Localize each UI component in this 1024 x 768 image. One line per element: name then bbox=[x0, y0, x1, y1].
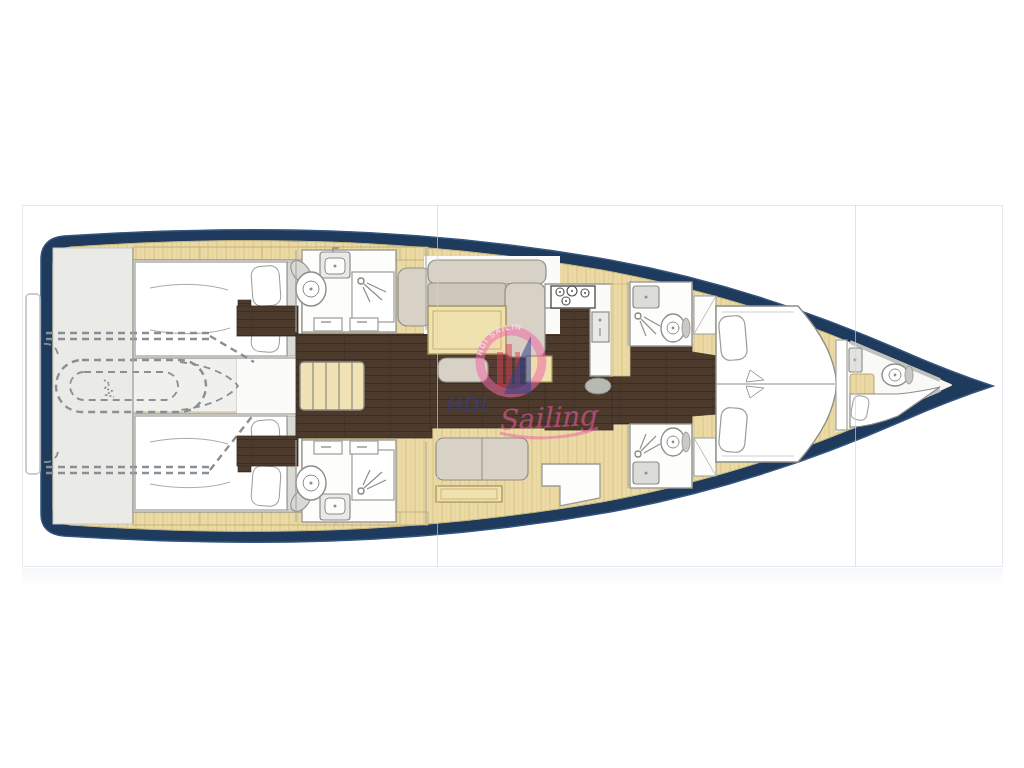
locker bbox=[850, 374, 874, 396]
pillow bbox=[251, 265, 282, 307]
toilet bbox=[882, 364, 913, 386]
gallery-divider-1 bbox=[437, 205, 438, 567]
pillow bbox=[718, 315, 748, 361]
forward-head-port bbox=[630, 282, 692, 346]
aft-aisle bbox=[133, 358, 237, 412]
shower bbox=[352, 450, 394, 500]
settee-arm bbox=[398, 268, 432, 326]
pillow bbox=[251, 465, 282, 507]
lazarette-floor bbox=[53, 248, 133, 524]
corridor-starboard bbox=[237, 436, 298, 466]
stove bbox=[551, 286, 595, 308]
settee-seat bbox=[428, 283, 506, 307]
settee-back bbox=[428, 260, 546, 284]
aft-head-port bbox=[287, 248, 396, 332]
forward-head-starboard bbox=[630, 424, 692, 488]
bulkhead bbox=[836, 340, 847, 430]
sink bbox=[320, 248, 350, 278]
galley-cabinet bbox=[611, 284, 630, 376]
corridor-port bbox=[237, 306, 298, 336]
gallery-divider-2 bbox=[855, 205, 856, 567]
watermark-word-blue: HDI bbox=[447, 392, 488, 417]
page-background: HDI SAILING HDI Sailing bbox=[0, 0, 1024, 768]
floor-mat bbox=[585, 378, 611, 394]
aft-head-starboard bbox=[287, 440, 396, 522]
aft-lobby bbox=[237, 352, 300, 418]
pillow bbox=[718, 407, 748, 453]
yacht-deck-plan: HDI SAILING HDI Sailing bbox=[0, 0, 1024, 768]
transom-swim-step bbox=[26, 294, 40, 474]
fridge bbox=[592, 312, 609, 342]
companionway-stairs bbox=[300, 362, 364, 410]
shower bbox=[352, 272, 394, 322]
toilet bbox=[661, 314, 690, 342]
sideboard bbox=[436, 486, 502, 502]
toilet bbox=[661, 428, 690, 456]
sink bbox=[320, 494, 350, 520]
